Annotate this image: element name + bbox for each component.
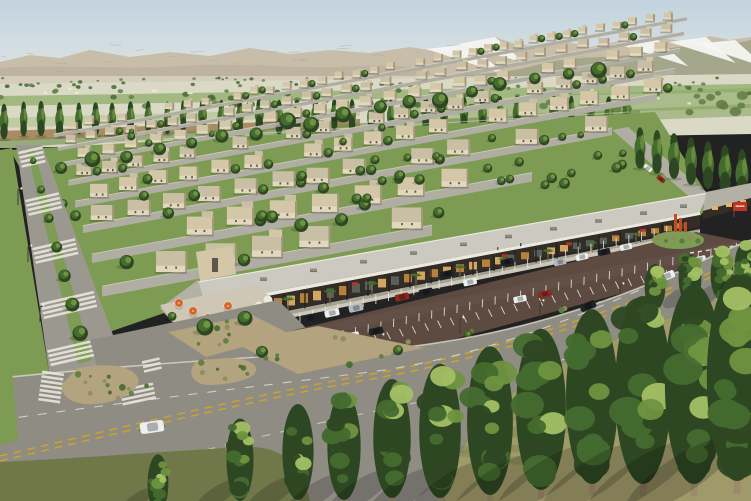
house-window (314, 179, 316, 181)
house-shade-edge (235, 243, 237, 264)
house-window (154, 180, 156, 182)
tree-highlight (245, 93, 248, 96)
house-shade-edge (670, 24, 672, 32)
foliage-blob (296, 475, 306, 483)
house-shadow (249, 93, 259, 95)
house-shade-edge (233, 108, 235, 116)
house-wall (90, 193, 109, 197)
distant-tree (715, 91, 721, 96)
tree-highlight (71, 300, 77, 306)
storefront-window (521, 252, 529, 259)
distant-tree (719, 102, 728, 109)
tree-highlight (356, 195, 360, 199)
house-shadow (515, 59, 527, 61)
house-wing (367, 93, 372, 96)
house-window (329, 207, 331, 209)
hvac-shadow (360, 262, 367, 263)
house-shade-edge (281, 236, 283, 257)
house-shadow (653, 51, 667, 53)
foliage-blob (295, 457, 311, 470)
house-wall (119, 186, 138, 190)
tree-highlight (158, 144, 163, 149)
house-window (441, 129, 443, 131)
house-wing (406, 122, 414, 127)
tree-highlight (327, 149, 331, 153)
house-window (195, 230, 197, 232)
house-shade-edge (337, 194, 339, 212)
house-shadow (546, 40, 556, 42)
house-shadow (433, 61, 443, 63)
house-wing (441, 65, 446, 68)
median-shrub (406, 339, 411, 344)
house-shadow (153, 162, 170, 164)
tree-highlight (551, 174, 555, 178)
house-wall (384, 97, 397, 100)
house-shadow (265, 93, 275, 95)
house-wall (489, 118, 508, 122)
tree-highlight (148, 140, 151, 143)
farm-building (44, 92, 47, 94)
house-shadow (440, 187, 468, 189)
house-wall (125, 145, 138, 148)
house-window (461, 151, 463, 153)
house-shadow (118, 190, 138, 192)
house-shade-edge (371, 96, 373, 105)
house-wing (324, 118, 331, 122)
palm-frond-icon (282, 299, 288, 300)
house-shade-edge (135, 125, 137, 133)
pedestrian (520, 243, 521, 246)
distant-tree (1, 77, 4, 79)
sign-text-line (736, 206, 745, 207)
storefront-window (300, 293, 308, 303)
house-wall (606, 57, 619, 60)
tree-highlight (498, 79, 504, 85)
desert-shrub (198, 359, 204, 365)
storefront-window (482, 259, 490, 266)
house-shadow (241, 111, 253, 113)
tree-highlight (567, 70, 572, 75)
house-shadow (473, 102, 490, 104)
tree-highlight (541, 36, 544, 39)
house-wing (535, 33, 539, 35)
foliage-blob (447, 410, 464, 423)
tower-doorway (212, 258, 218, 272)
house-shadow (415, 79, 427, 81)
house-wing (647, 26, 652, 29)
house-wall (516, 139, 539, 144)
house-shade-edge (460, 51, 462, 58)
storefront-window (664, 226, 672, 231)
foliage-blob (717, 403, 750, 429)
foliage-blob (589, 383, 610, 400)
distant-tree (119, 78, 122, 81)
poplar-tree (686, 163, 696, 185)
poplar-highlight (79, 108, 82, 119)
house-shade-edge (617, 50, 619, 59)
desert-shrub (225, 319, 229, 323)
house-shade-edge (506, 109, 508, 122)
poplar-highlight (725, 154, 730, 171)
house-shadow (562, 37, 572, 39)
house-shadow (526, 93, 543, 95)
house-window (81, 172, 83, 174)
house-window (105, 216, 107, 218)
house-window (425, 109, 427, 111)
tree-highlight (518, 159, 522, 163)
tree-highlight (509, 176, 513, 180)
poplar-tree (0, 123, 7, 139)
foliage-blob (566, 352, 589, 370)
house-shadow (99, 122, 109, 124)
tree-highlight (244, 313, 250, 319)
poplar-tree (652, 154, 661, 174)
house-wing (90, 116, 94, 118)
tree-highlight (355, 86, 358, 89)
desert-shrub (340, 336, 346, 342)
house-wall (630, 53, 643, 56)
house-window (371, 199, 373, 201)
distant-tree (674, 82, 677, 84)
house-window (142, 211, 144, 213)
storefront-window (378, 279, 386, 288)
house-window (287, 214, 289, 216)
tree-highlight (381, 178, 385, 182)
house-window (530, 140, 532, 142)
house-window (320, 129, 322, 131)
house-window (620, 75, 622, 77)
tree-highlight (274, 102, 277, 105)
house-shade-edge (166, 170, 168, 183)
tree-highlight (286, 115, 293, 122)
house-shadow (383, 100, 397, 102)
house-shadow (637, 71, 654, 73)
house-shade-edge (606, 116, 608, 131)
house-window (501, 118, 503, 120)
distant-tree (78, 80, 83, 84)
house-shade-edge (487, 59, 489, 67)
tree-highlight (379, 102, 384, 107)
house-shade-edge (544, 47, 546, 55)
lamp-head (542, 299, 544, 301)
house-shade-edge (114, 144, 116, 153)
house-shade-edge (321, 143, 323, 156)
scene-canvas (0, 0, 751, 501)
tree-highlight (311, 81, 314, 84)
house-wing (344, 134, 352, 139)
house-window (319, 242, 321, 244)
house-window (587, 80, 589, 82)
house-shade-edge (92, 117, 94, 124)
house-window (235, 220, 237, 222)
house-wall (198, 197, 221, 202)
house-wing (625, 30, 630, 33)
foliage-blob (716, 268, 727, 277)
house-window (415, 191, 417, 193)
house-wing (583, 25, 587, 27)
tree-highlight (203, 321, 210, 328)
palm-frond-icon (410, 275, 416, 276)
house-shadow (65, 142, 77, 144)
house-shadow (456, 69, 468, 71)
house-shade-edge (393, 62, 395, 69)
house-shade-edge (537, 129, 539, 144)
foliage-blob (302, 436, 313, 445)
house-wing (269, 229, 282, 236)
tree-highlight (438, 209, 443, 214)
hvac-shadow (550, 229, 557, 230)
house-shadow (360, 90, 372, 92)
foliage-blob (715, 246, 730, 258)
house-window (316, 153, 318, 155)
poplar-tree (635, 150, 644, 169)
house-wing (667, 22, 672, 25)
house-wing (285, 195, 296, 201)
house-wall (219, 127, 232, 130)
house-shadow (178, 180, 198, 182)
house-shadow (84, 124, 94, 126)
foliage-blob (579, 314, 602, 333)
desert-shrub (116, 396, 120, 400)
house-shadow (179, 157, 196, 159)
house-shadow (609, 78, 626, 80)
umbrella-pole (178, 302, 180, 304)
house-wall (174, 136, 187, 139)
desert-shrub (197, 342, 201, 346)
foliage-blob (376, 438, 393, 452)
house-wing (358, 68, 362, 70)
tree-highlight (571, 170, 575, 174)
house-window (190, 155, 192, 157)
house-window (86, 172, 88, 174)
house-shadow (334, 78, 344, 80)
house-shadow (197, 201, 221, 203)
house-shade-edge (256, 178, 258, 193)
house-shade-edge (184, 193, 186, 208)
house-window (346, 147, 348, 149)
house-shade-edge (276, 112, 278, 121)
house-shadow (391, 228, 423, 230)
tree-highlight (500, 178, 504, 182)
house-shadow (340, 92, 352, 94)
house-shadow (379, 84, 391, 86)
umbrella-pole (267, 299, 269, 301)
house-wall (447, 150, 470, 155)
house-window (450, 182, 452, 184)
house-shadow (232, 148, 249, 150)
tree-highlight (359, 167, 363, 171)
house-wall (334, 147, 353, 151)
house-wall (156, 266, 187, 272)
house-wall (91, 215, 114, 220)
house-shade-edge (508, 71, 510, 80)
house-shade-edge (212, 217, 214, 235)
tree-highlight (544, 182, 548, 186)
house-window (592, 127, 594, 129)
house-shade-edge (142, 155, 144, 166)
house-shadow (85, 138, 97, 140)
house-shade-edge (136, 138, 138, 147)
house-window (287, 182, 289, 184)
house-window (223, 169, 225, 171)
distant-tree (96, 80, 99, 82)
distant-tree (715, 77, 719, 80)
house-shadow (259, 108, 271, 110)
house-wing (552, 31, 556, 33)
house-wall (127, 163, 143, 166)
house-wall (364, 141, 383, 145)
tree-highlight (342, 139, 345, 142)
house-shade-edge (423, 58, 425, 65)
foliage-blob (337, 474, 348, 483)
house-wall (286, 135, 302, 138)
house-shade-edge (653, 14, 655, 21)
foliage-blob (153, 489, 166, 499)
house-shade-edge (194, 146, 196, 157)
tree-highlight (96, 168, 100, 172)
desert-shrub (225, 325, 230, 330)
house-shade-edge (467, 169, 469, 187)
tree-highlight (300, 220, 306, 226)
house-shade-edge (107, 184, 109, 197)
foliage-blob (712, 256, 720, 262)
house-shade-edge (522, 41, 524, 48)
house-wall (304, 153, 323, 157)
house-wing (416, 84, 421, 87)
house-shadow (513, 47, 523, 49)
desert-shrub (144, 383, 149, 388)
tree-highlight (399, 172, 404, 177)
hvac-shadow (260, 280, 267, 281)
distant-tree (24, 83, 29, 87)
tree-highlight (439, 157, 442, 160)
foliage-blob (625, 297, 658, 323)
tree-highlight (271, 212, 276, 217)
house-wing (646, 57, 653, 61)
tree-highlight (621, 161, 625, 165)
aerial-render-image (0, 0, 751, 501)
house-shade-edge (149, 200, 151, 215)
foliage-blob (688, 257, 698, 265)
house-shade-edge (208, 125, 210, 134)
house-wall (102, 150, 115, 153)
house-shadow (155, 272, 187, 274)
house-shade-edge (641, 47, 643, 56)
farm-building (151, 90, 157, 92)
house-shadow (314, 132, 331, 134)
house-shade-edge (567, 97, 569, 110)
house-shadow (186, 235, 214, 237)
house-shade-edge (420, 87, 422, 96)
house-shade-edge (413, 126, 415, 139)
tree-highlight (221, 131, 227, 137)
distant-tree (234, 78, 237, 80)
house-wall (252, 250, 283, 256)
house-wall (102, 169, 118, 172)
house-window (161, 180, 163, 182)
foliage-blob (158, 461, 167, 468)
foliage-blob (161, 468, 171, 476)
distant-tree (88, 86, 92, 89)
house-window (592, 80, 594, 82)
house-shadow (447, 109, 464, 111)
house-wall (644, 88, 663, 92)
tree-highlight (534, 74, 539, 79)
house-wall (360, 102, 373, 105)
storefront-window (391, 276, 399, 285)
house-wall (398, 190, 425, 195)
lamp-head (30, 244, 32, 246)
desert-shrub (223, 376, 228, 381)
house-shadow (597, 45, 609, 47)
house-shadow (281, 104, 293, 106)
poplar-tree (20, 120, 26, 136)
house-wing (111, 125, 116, 128)
house-shade-edge (370, 82, 372, 90)
sign-post (733, 211, 735, 217)
house-shade-edge (251, 104, 253, 112)
foliage-blob (383, 404, 399, 417)
foliage-blob (564, 406, 595, 431)
poplar-tree (37, 120, 44, 136)
house-shade-edge (325, 104, 327, 113)
house-window (249, 189, 251, 191)
island-shrub (672, 236, 676, 240)
distant-tree (706, 94, 715, 101)
house-window (184, 155, 186, 157)
house-shade-edge (597, 91, 599, 104)
farm-building (187, 92, 192, 94)
house-shadow (610, 99, 630, 101)
house-shadow (117, 120, 127, 122)
house-shadow (584, 131, 608, 133)
distant-tree (737, 103, 745, 109)
mountain-texture (288, 52, 300, 53)
house-window (592, 101, 594, 103)
house-wing (189, 98, 193, 100)
tree-highlight (597, 64, 604, 71)
house-wall (441, 181, 468, 186)
house-shade-edge (426, 71, 428, 79)
house-window (615, 75, 617, 77)
house-window (241, 189, 243, 191)
house-wall (564, 65, 577, 68)
storefront-sign (566, 242, 572, 245)
house-shade-edge (328, 168, 330, 183)
house-window (617, 96, 619, 98)
foliage-blob (430, 366, 455, 386)
house-window (132, 164, 134, 166)
distant-tree (217, 77, 221, 80)
house-wing (423, 69, 428, 72)
house-shade-edge (108, 115, 110, 122)
tree-highlight (495, 45, 498, 48)
house-shadow (311, 212, 339, 214)
tree-highlight (79, 328, 85, 334)
farm-building (75, 92, 79, 94)
tree-highlight (236, 123, 239, 126)
poplar-highlight (657, 138, 661, 153)
house-window (340, 147, 342, 149)
house-shadow (385, 69, 395, 71)
house-window (278, 214, 280, 216)
house-shadow (395, 139, 415, 141)
tree-highlight (322, 184, 327, 189)
house-shadow (577, 47, 589, 49)
house-shadow (145, 127, 157, 129)
tree-highlight (576, 81, 580, 85)
house-window (656, 88, 658, 90)
